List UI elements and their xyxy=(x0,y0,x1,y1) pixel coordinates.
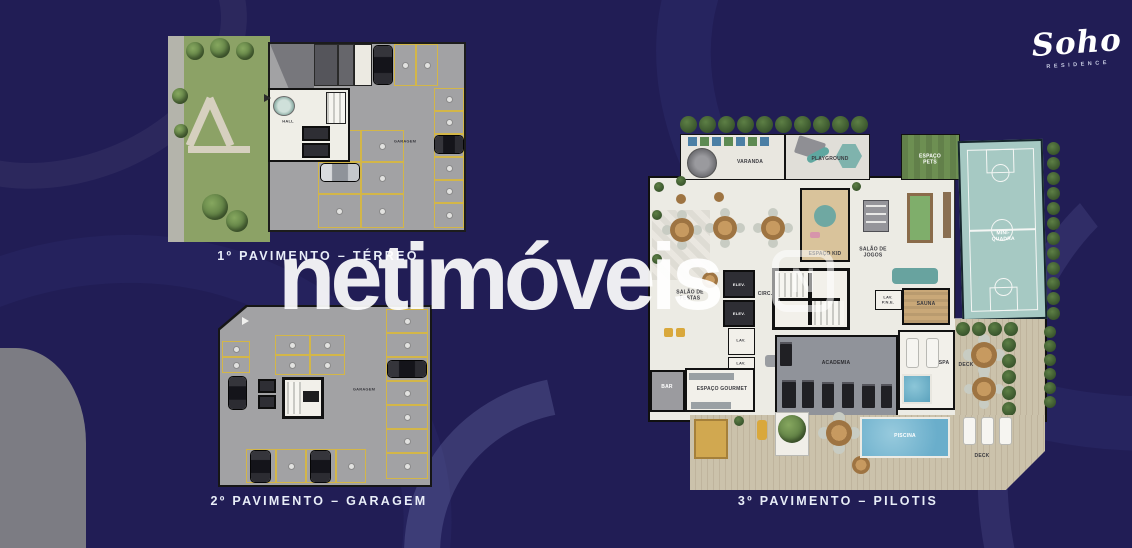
side-table xyxy=(676,194,686,204)
round-table xyxy=(713,216,737,240)
planter xyxy=(760,137,769,146)
armchair xyxy=(676,328,685,337)
plant xyxy=(652,254,662,264)
water-feature xyxy=(273,96,295,116)
bar-room xyxy=(650,370,685,412)
car xyxy=(311,451,330,482)
tree xyxy=(236,42,254,60)
plant xyxy=(734,416,744,426)
caption-pilotis: 3º PAVIMENTO – PILOTIS xyxy=(738,494,938,508)
utility-room xyxy=(338,44,354,86)
room-label-varanda: VARANDA xyxy=(737,160,763,166)
armchair xyxy=(664,328,673,337)
gym-equipment xyxy=(802,380,814,408)
plant xyxy=(676,176,686,186)
pool-lounger xyxy=(963,417,976,445)
planter xyxy=(712,137,721,146)
gym-equipment xyxy=(822,382,834,408)
side-table xyxy=(714,192,724,202)
parking-spot xyxy=(394,44,416,86)
parking-spot xyxy=(310,355,345,375)
tree xyxy=(172,88,188,104)
room-label-festas: SALÃO DE FESTAS xyxy=(674,290,706,302)
planter xyxy=(724,137,733,146)
utility-room-white xyxy=(354,44,372,86)
parking-spot xyxy=(336,449,366,483)
round-lounge xyxy=(687,148,717,178)
round-table xyxy=(972,377,996,401)
utility-room xyxy=(314,44,338,86)
floorplan-marketing-image: HALL GARAGEM GARAGEM xyxy=(0,0,1132,548)
car-silver xyxy=(321,164,359,181)
tree xyxy=(202,194,228,220)
hedge-deck-top xyxy=(956,322,1018,336)
gym-equipment xyxy=(782,380,796,408)
gourmet-counter xyxy=(691,402,731,409)
foosball-table xyxy=(863,200,889,232)
hedge-top xyxy=(680,116,868,133)
parking-spot xyxy=(434,203,464,228)
room-label-jogos: SALÃO DE JOGOS xyxy=(858,247,888,259)
parking-spot xyxy=(434,180,464,203)
room-label-lav: LAV. xyxy=(736,362,745,367)
parking-spot xyxy=(386,429,428,453)
soho-logo-script: Soho xyxy=(1030,22,1123,64)
parking-spot xyxy=(386,381,428,405)
stairs xyxy=(287,382,301,414)
room-label-deck: DECK xyxy=(959,363,974,369)
stair-landing xyxy=(303,391,319,402)
massage-lounger xyxy=(926,338,939,368)
tree xyxy=(778,415,806,443)
room-label-elev: ELEV. xyxy=(733,282,745,287)
court: MINI-QUADRA xyxy=(958,139,1048,321)
parking-spot xyxy=(434,157,464,180)
gym-equipment xyxy=(862,384,875,408)
spa-pool xyxy=(902,374,932,404)
gym-equipment xyxy=(780,342,792,366)
parking-spot xyxy=(310,335,345,355)
entrance-arrow xyxy=(264,94,271,102)
gym-equipment xyxy=(842,382,854,408)
hedge-deck-col xyxy=(1002,338,1016,416)
floorplan-garagem: GARAGEM xyxy=(218,299,432,491)
parking-spot xyxy=(361,162,404,194)
tree xyxy=(226,210,248,232)
parking-spot xyxy=(276,449,306,483)
parking-spot xyxy=(275,355,310,375)
parking-spot xyxy=(434,88,464,111)
room-label-sauna: SAUNA xyxy=(917,302,936,308)
parking-spot xyxy=(386,333,428,357)
elevator xyxy=(258,379,276,393)
room-label-pets: ESPAÇO PETS xyxy=(917,154,943,166)
kid-toy xyxy=(810,232,820,238)
room-label-garagem: GARAGEM xyxy=(394,140,416,145)
elevator xyxy=(258,395,276,409)
parking-spot xyxy=(318,194,361,228)
car xyxy=(388,361,426,377)
sideboard xyxy=(943,192,951,238)
pool-lounger xyxy=(999,417,1012,445)
parking-spot xyxy=(222,357,250,373)
pool-lounger xyxy=(981,417,994,445)
room-label-piscina: PISCINA xyxy=(894,434,916,440)
pool-table xyxy=(907,193,933,243)
gourmet-counter xyxy=(689,373,734,380)
round-table xyxy=(761,216,785,240)
elevator: ELEV. xyxy=(723,270,755,298)
car xyxy=(251,451,270,482)
gym-equipment xyxy=(881,384,892,408)
round-table xyxy=(670,218,694,242)
parking-spot xyxy=(386,405,428,429)
room-label-circ: CIRC. xyxy=(758,292,773,298)
plant xyxy=(652,210,662,220)
planter xyxy=(748,137,757,146)
plant xyxy=(852,182,861,191)
car xyxy=(435,136,463,153)
parking-spot xyxy=(361,130,404,162)
room-label-hall: HALL xyxy=(282,120,293,125)
parking-spot xyxy=(361,194,404,228)
caption-garagem: 2º PAVIMENTO – GARAGEM xyxy=(211,494,428,508)
soho-residence-logo: Soho RESIDENCE xyxy=(1021,24,1132,72)
room-label-lav: LAV. xyxy=(736,339,745,344)
round-table xyxy=(971,342,997,368)
room-label-quadra: MINI-QUADRA xyxy=(988,231,1018,243)
room-label-lav-pne: LAV. P.N.E. xyxy=(880,295,896,304)
room-label-gourmet: ESPAÇO GOURMET xyxy=(697,387,748,393)
room-label-spa: SPA xyxy=(939,361,950,367)
parking-spot xyxy=(434,111,464,134)
sofa-teal xyxy=(892,268,938,284)
round-table xyxy=(702,272,718,288)
elevator xyxy=(302,126,330,141)
tree xyxy=(186,42,204,60)
planter xyxy=(736,137,745,146)
bg-gray-shape xyxy=(0,348,86,548)
planter xyxy=(700,137,709,146)
netimoveis-logo-icon: N xyxy=(772,250,834,312)
room-label-elev: ELEV. xyxy=(733,311,745,316)
floorplan-pilotis: VARANDA PLAYGROUND ESPAÇO PETS MINI-QUAD… xyxy=(630,112,1062,494)
round-table xyxy=(852,456,870,474)
planter xyxy=(688,137,697,146)
elevator xyxy=(302,143,330,158)
room-label-bar: BAR xyxy=(661,385,672,391)
room-label-garagem: GARAGEM xyxy=(353,388,375,393)
tree xyxy=(174,124,188,138)
hedge-outer-right xyxy=(1044,326,1056,408)
car xyxy=(229,377,246,409)
parking-spot xyxy=(386,309,428,333)
caption-terreo: 1º PAVIMENTO – TÉRREO xyxy=(217,249,419,263)
armchair xyxy=(757,420,767,440)
kid-rug xyxy=(814,205,836,227)
round-table xyxy=(826,420,852,446)
floorplan-terreo: HALL GARAGEM xyxy=(168,30,470,250)
parking-spot xyxy=(386,453,428,479)
parking-spot xyxy=(275,335,310,355)
gourmet-table xyxy=(694,419,728,459)
car xyxy=(374,46,392,84)
tree xyxy=(210,38,230,58)
parking-spot xyxy=(222,341,250,357)
plant xyxy=(654,182,664,192)
stairs xyxy=(326,92,346,124)
massage-lounger xyxy=(906,338,919,368)
garden-path xyxy=(188,146,250,153)
hedge-court-right xyxy=(1047,142,1060,320)
room-label-playground: PLAYGROUND xyxy=(811,157,848,163)
room-label-deck: DECK xyxy=(975,454,990,460)
elevator: ELEV. xyxy=(723,300,755,327)
entrance-arrow xyxy=(242,317,249,325)
parking-spot xyxy=(416,44,438,86)
room-label-academia: ACADEMIA xyxy=(822,361,851,367)
